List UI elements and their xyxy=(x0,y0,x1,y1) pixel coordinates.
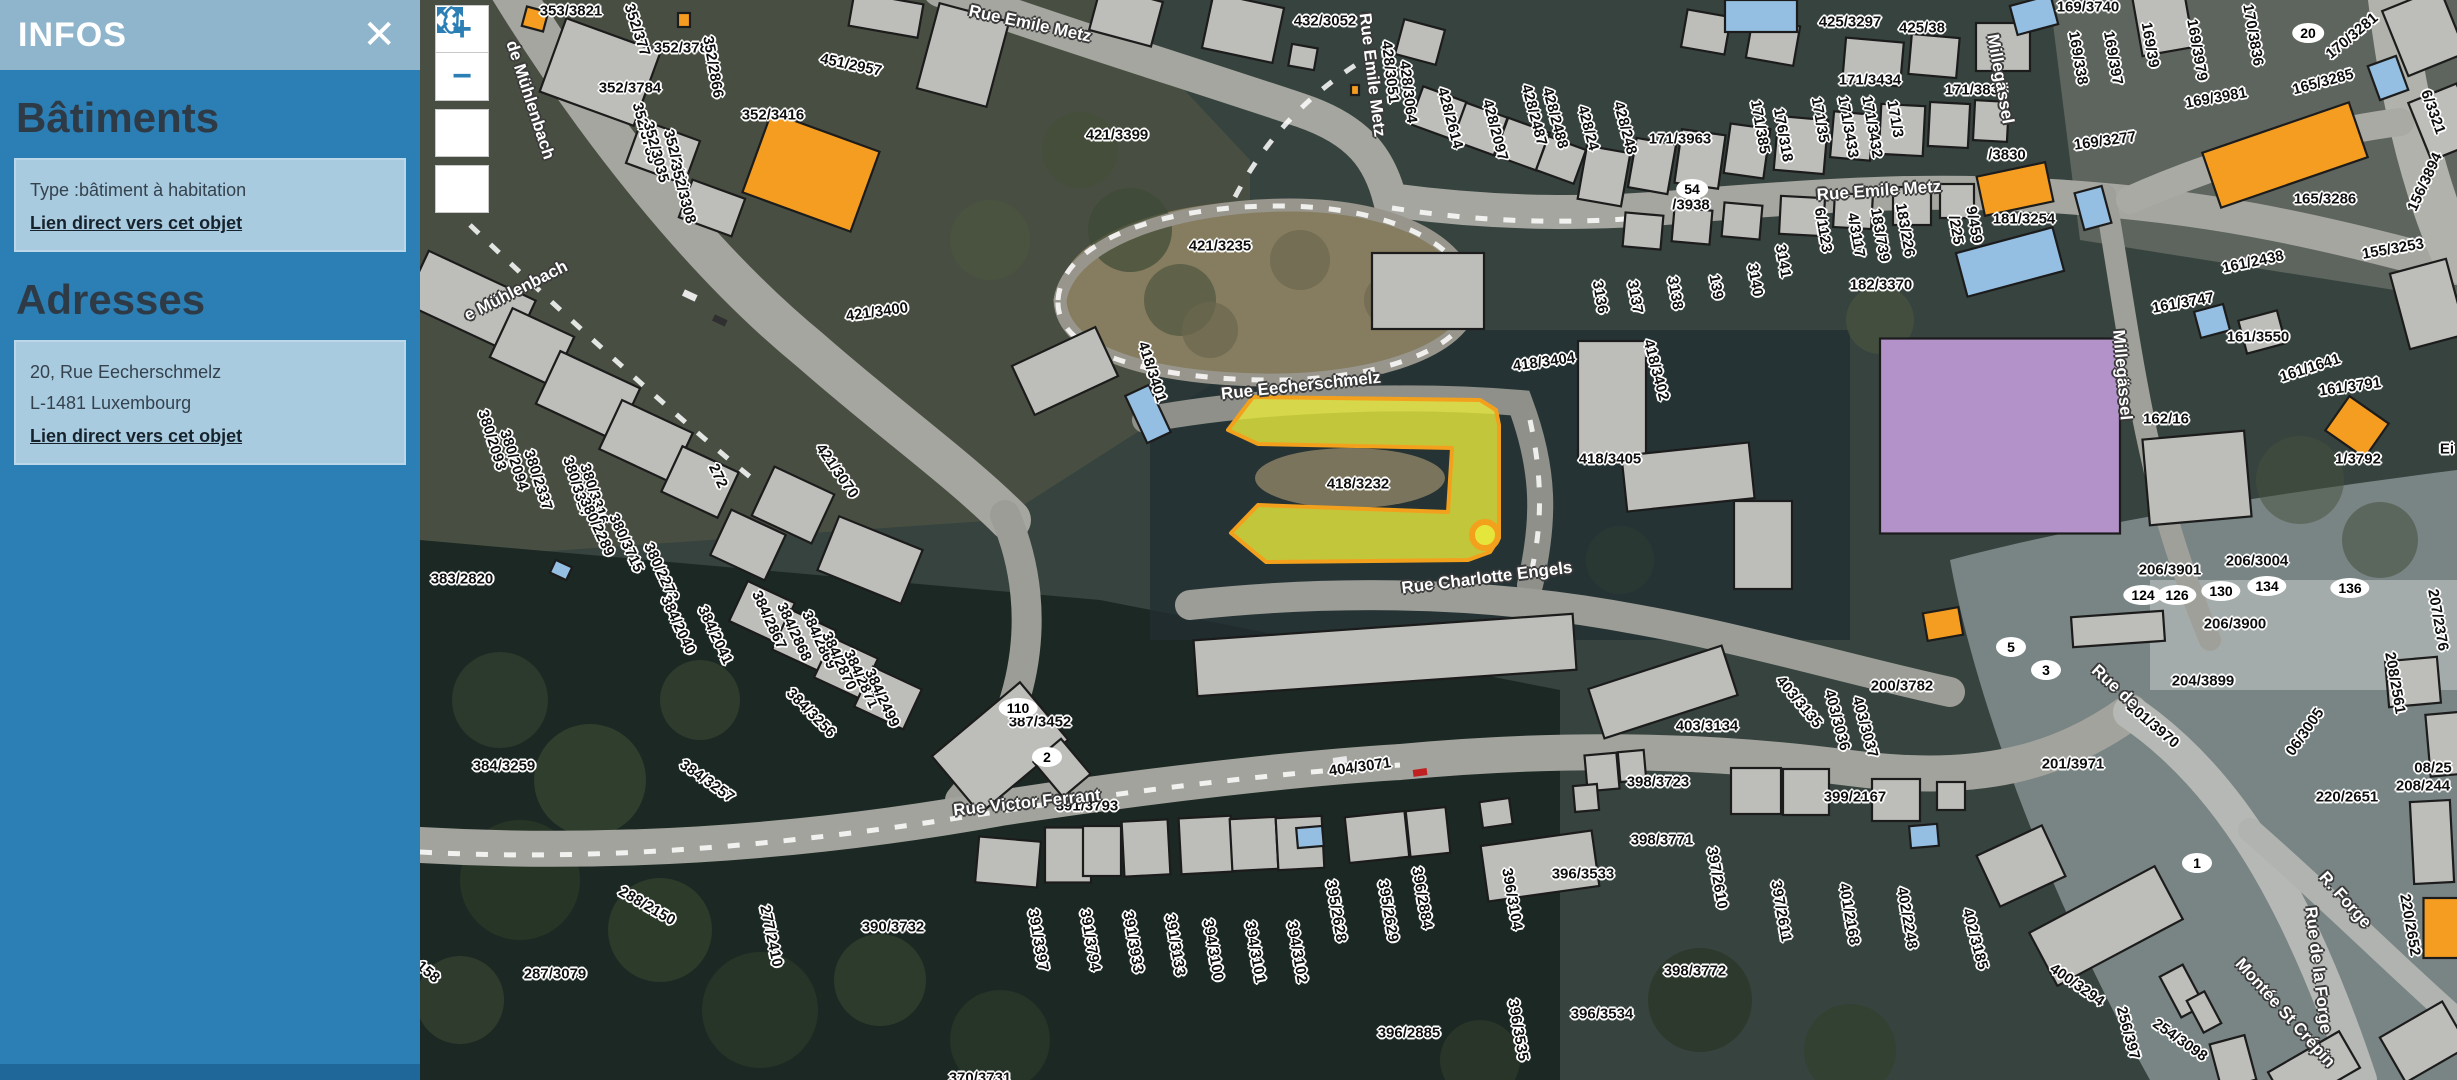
info-panel-header: INFOS ✕ xyxy=(0,0,420,70)
building xyxy=(1083,826,1121,876)
building xyxy=(1724,123,1771,178)
building xyxy=(1623,212,1664,249)
building xyxy=(1908,34,1959,78)
building xyxy=(1406,807,1451,857)
building xyxy=(1618,750,1647,782)
building xyxy=(1363,13,1371,21)
batiment-direct-link[interactable]: Lien direct vers cet objet xyxy=(30,213,242,234)
building xyxy=(1722,202,1763,239)
building xyxy=(2132,0,2194,56)
building xyxy=(2385,657,2441,707)
adresse-city: L-1481 Luxembourg xyxy=(30,393,390,414)
building xyxy=(1479,798,1512,828)
building xyxy=(1872,779,1920,821)
building xyxy=(1783,769,1829,815)
building xyxy=(1879,104,1926,156)
building xyxy=(1893,187,1931,225)
building xyxy=(1774,116,1829,174)
section-batiments: Bâtiments Type :bâtiment à habitation Li… xyxy=(14,84,406,252)
batiment-type: Type :bâtiment à habitation xyxy=(30,180,390,201)
building xyxy=(1923,607,1963,641)
building xyxy=(1940,184,1974,218)
building xyxy=(1880,339,2120,534)
section-heading: Bâtiments xyxy=(16,94,406,142)
panel-footer xyxy=(0,1064,420,1080)
aerial-map[interactable]: 353/3821352/377352/3780352/2866352/37843… xyxy=(420,0,2457,1080)
building xyxy=(1628,138,1676,194)
building xyxy=(1674,129,1725,189)
adresse-direct-link[interactable]: Lien direct vers cet objet xyxy=(30,426,242,447)
building xyxy=(975,836,1041,887)
map-canvas xyxy=(420,0,2457,1080)
building xyxy=(1830,111,1874,160)
building xyxy=(1928,102,1970,148)
section-heading: Adresses xyxy=(16,276,406,324)
building xyxy=(1937,782,1965,810)
adresse-info-card: 20, Rue Eecherschmelz L-1481 Luxembourg … xyxy=(14,340,406,465)
panel-title: INFOS xyxy=(18,16,127,55)
building xyxy=(1296,826,1324,848)
section-adresses: Adresses 20, Rue Eecherschmelz L-1481 Lu… xyxy=(14,266,406,465)
luxembourg-extent-button[interactable] xyxy=(435,109,489,157)
building xyxy=(1681,9,1731,54)
building xyxy=(2071,611,2165,647)
building xyxy=(1578,146,1631,207)
building xyxy=(1573,784,1599,812)
building xyxy=(522,6,548,31)
building xyxy=(1725,0,1797,32)
building xyxy=(2425,711,2457,776)
geoportal-app: 353/3821352/377352/3780352/2866352/37843… xyxy=(0,0,2457,1080)
info-panel: INFOS ✕ Bâtiments Type :bâtiment à habit… xyxy=(0,0,420,1080)
building xyxy=(2142,431,2251,526)
building xyxy=(1833,193,1873,229)
building xyxy=(1779,196,1825,236)
adresse-street: 20, Rue Eecherschmelz xyxy=(30,362,390,383)
building xyxy=(1909,824,1939,848)
building xyxy=(1372,253,1484,329)
batiment-info-card: Type :bâtiment à habitation Lien direct … xyxy=(14,158,406,252)
building xyxy=(1351,85,1359,95)
building xyxy=(1842,38,1904,87)
building xyxy=(1230,817,1279,871)
building xyxy=(1578,341,1646,459)
building xyxy=(1731,768,1781,814)
fullscreen-button[interactable] xyxy=(435,165,489,213)
building xyxy=(678,13,690,27)
zoom-out-button[interactable]: − xyxy=(435,53,489,101)
building xyxy=(1345,811,1409,863)
address-marker xyxy=(1472,522,1498,548)
building xyxy=(1179,816,1234,875)
building xyxy=(1734,501,1792,589)
building xyxy=(2410,800,2454,884)
building xyxy=(1122,819,1171,876)
map-controls: + − xyxy=(435,5,491,213)
building xyxy=(1973,100,2009,142)
building xyxy=(1288,44,1317,70)
close-icon[interactable]: ✕ xyxy=(356,15,402,55)
building xyxy=(1672,207,1713,244)
building xyxy=(2424,898,2457,958)
